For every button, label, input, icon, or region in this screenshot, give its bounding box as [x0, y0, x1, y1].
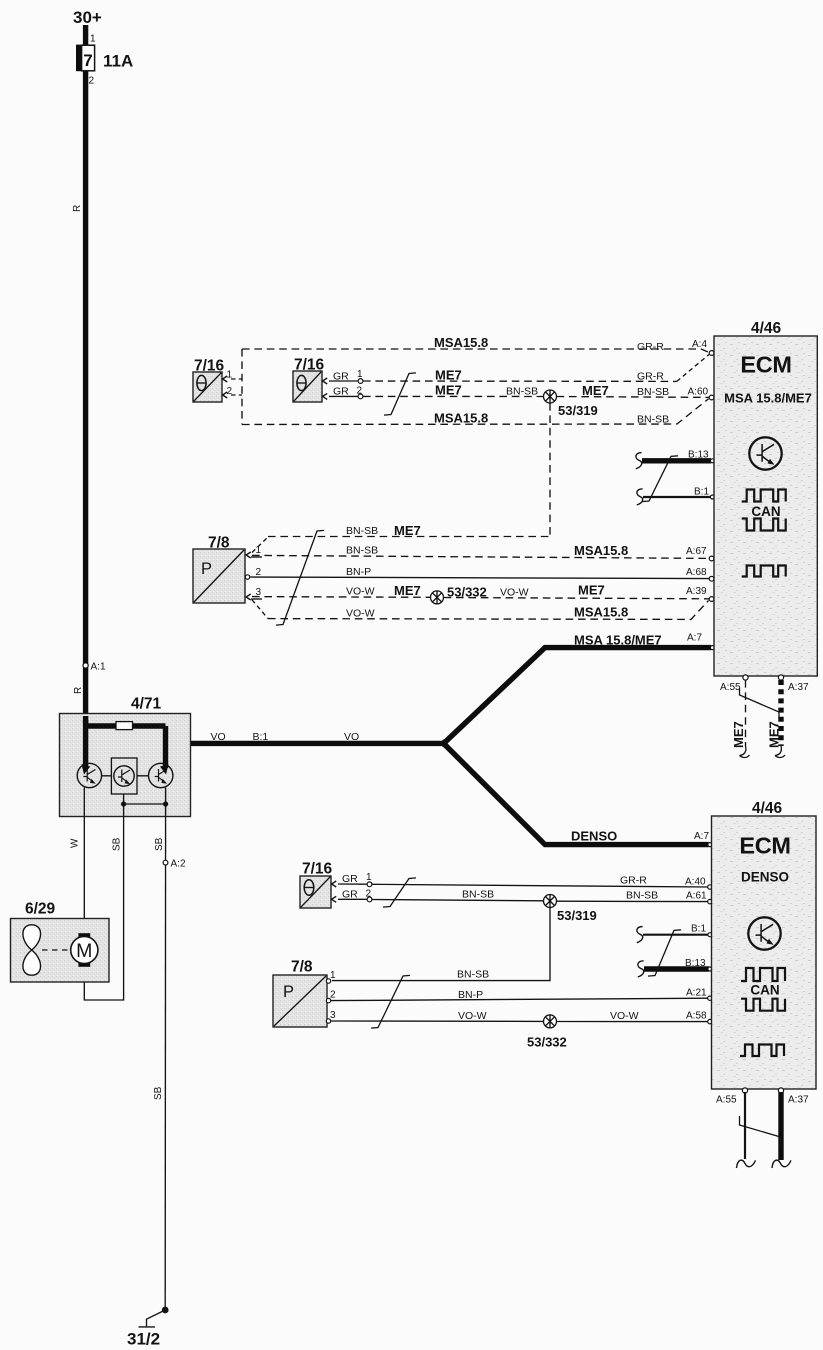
svg-text:4/71: 4/71	[131, 696, 162, 713]
svg-text:GR: GR	[333, 386, 349, 398]
svg-text:ME7: ME7	[394, 523, 421, 538]
svg-text:SB: SB	[153, 1086, 164, 1100]
svg-text:BN-SB: BN-SB	[346, 544, 378, 556]
svg-text:A:68: A:68	[686, 567, 707, 578]
svg-text:7/16: 7/16	[194, 358, 225, 375]
svg-text:A:55: A:55	[720, 682, 741, 693]
svg-text:1: 1	[330, 970, 336, 981]
svg-text:BN-SB: BN-SB	[637, 386, 669, 398]
svg-text:A:67: A:67	[686, 546, 707, 557]
svg-text:R: R	[72, 205, 83, 212]
svg-text:BN-SB: BN-SB	[626, 890, 658, 902]
svg-text:ECM: ECM	[739, 833, 790, 859]
svg-text:GR: GR	[333, 370, 349, 382]
svg-text:A:39: A:39	[686, 586, 707, 597]
svg-text:VO: VO	[344, 731, 359, 743]
svg-text:A:58: A:58	[686, 1010, 707, 1021]
svg-text:7/8: 7/8	[291, 959, 313, 976]
svg-text:SB: SB	[112, 837, 123, 851]
svg-text:BN-P: BN-P	[458, 989, 483, 1001]
svg-text:53/332: 53/332	[447, 584, 487, 599]
svg-text:11A: 11A	[103, 52, 133, 71]
svg-text:BN-SB: BN-SB	[637, 413, 669, 425]
svg-text:GR: GR	[342, 888, 358, 900]
svg-text:A:61: A:61	[686, 890, 707, 901]
svg-text:ME7: ME7	[435, 383, 462, 398]
svg-text:VO-W: VO-W	[500, 587, 529, 599]
svg-text:MSA15.8: MSA15.8	[574, 543, 628, 558]
svg-text:B:13: B:13	[685, 958, 706, 969]
svg-text:GR-R: GR-R	[637, 371, 664, 383]
svg-text:GR-R: GR-R	[637, 341, 664, 353]
svg-text:CAN: CAN	[751, 504, 780, 519]
svg-text:31/2: 31/2	[127, 1330, 160, 1349]
svg-text:A:40: A:40	[685, 876, 706, 887]
svg-text:B:1: B:1	[694, 487, 709, 498]
svg-text:VO-W: VO-W	[346, 586, 375, 598]
svg-text:A:2: A:2	[171, 859, 186, 870]
svg-text:3: 3	[330, 1010, 336, 1021]
svg-text:1: 1	[90, 34, 96, 45]
svg-text:GR-R: GR-R	[620, 874, 647, 886]
svg-text:ECM: ECM	[740, 352, 791, 378]
svg-text:B:1: B:1	[691, 923, 706, 934]
svg-text:7/8: 7/8	[208, 535, 230, 552]
svg-text:A:55: A:55	[716, 1095, 737, 1106]
svg-text:VO-W: VO-W	[610, 1010, 639, 1022]
svg-text:2: 2	[330, 990, 336, 1001]
svg-text:VO-W: VO-W	[458, 1010, 487, 1022]
svg-text:ME7: ME7	[394, 583, 421, 598]
svg-text:MSA15.8: MSA15.8	[434, 411, 488, 426]
svg-text:M: M	[76, 940, 92, 962]
svg-text:ME7: ME7	[435, 367, 462, 382]
svg-text:A:7: A:7	[687, 633, 702, 644]
svg-text:4/46: 4/46	[751, 320, 782, 337]
svg-text:W: W	[70, 838, 81, 848]
svg-text:B:13: B:13	[688, 450, 709, 461]
svg-text:A:7: A:7	[694, 831, 709, 842]
svg-text:A:60: A:60	[688, 386, 709, 397]
svg-text:BN-SB: BN-SB	[346, 525, 378, 537]
svg-text:53/319: 53/319	[558, 403, 598, 418]
svg-text:A:1: A:1	[91, 662, 106, 673]
svg-text:ME7: ME7	[578, 583, 605, 598]
svg-text:A:37: A:37	[788, 682, 809, 693]
svg-text:P: P	[201, 560, 212, 578]
svg-text:DENSO: DENSO	[571, 829, 617, 844]
svg-text:A:4: A:4	[692, 339, 707, 350]
svg-text:53/332: 53/332	[527, 1035, 567, 1050]
svg-text:GR: GR	[342, 873, 358, 885]
svg-text:53/319: 53/319	[557, 908, 597, 923]
svg-text:SB: SB	[154, 837, 165, 851]
svg-text:ME7: ME7	[582, 383, 609, 398]
svg-text:6/29: 6/29	[25, 901, 56, 918]
svg-text:4/46: 4/46	[752, 800, 783, 817]
svg-text:MSA15.8: MSA15.8	[574, 605, 628, 620]
svg-text:2: 2	[89, 76, 95, 87]
svg-text:R: R	[73, 687, 84, 694]
svg-text:ME7: ME7	[731, 721, 746, 748]
svg-text:7/16: 7/16	[302, 861, 333, 878]
svg-text:CAN: CAN	[750, 983, 779, 998]
svg-text:ME7: ME7	[767, 721, 782, 748]
svg-text:30+: 30+	[73, 8, 102, 27]
svg-text:MSA 15.8/ME7: MSA 15.8/ME7	[574, 632, 662, 647]
svg-text:MSA15.8: MSA15.8	[434, 335, 488, 350]
svg-text:BN-SB: BN-SB	[462, 889, 494, 901]
svg-text:P: P	[283, 983, 294, 1001]
svg-text:7/16: 7/16	[294, 357, 325, 374]
svg-text:7: 7	[83, 51, 92, 70]
svg-text:DENSO: DENSO	[741, 870, 789, 885]
svg-text:MSA 15.8/ME7: MSA 15.8/ME7	[724, 391, 812, 406]
svg-text:VO: VO	[211, 731, 226, 743]
svg-text:BN-P: BN-P	[346, 566, 371, 578]
svg-text:BN-SB: BN-SB	[506, 386, 538, 398]
svg-text:BN-SB: BN-SB	[457, 969, 489, 981]
svg-text:B:1: B:1	[253, 731, 269, 743]
svg-text:A:37: A:37	[788, 1095, 809, 1106]
svg-text:A:21: A:21	[686, 988, 707, 999]
svg-text:VO-W: VO-W	[346, 608, 375, 620]
